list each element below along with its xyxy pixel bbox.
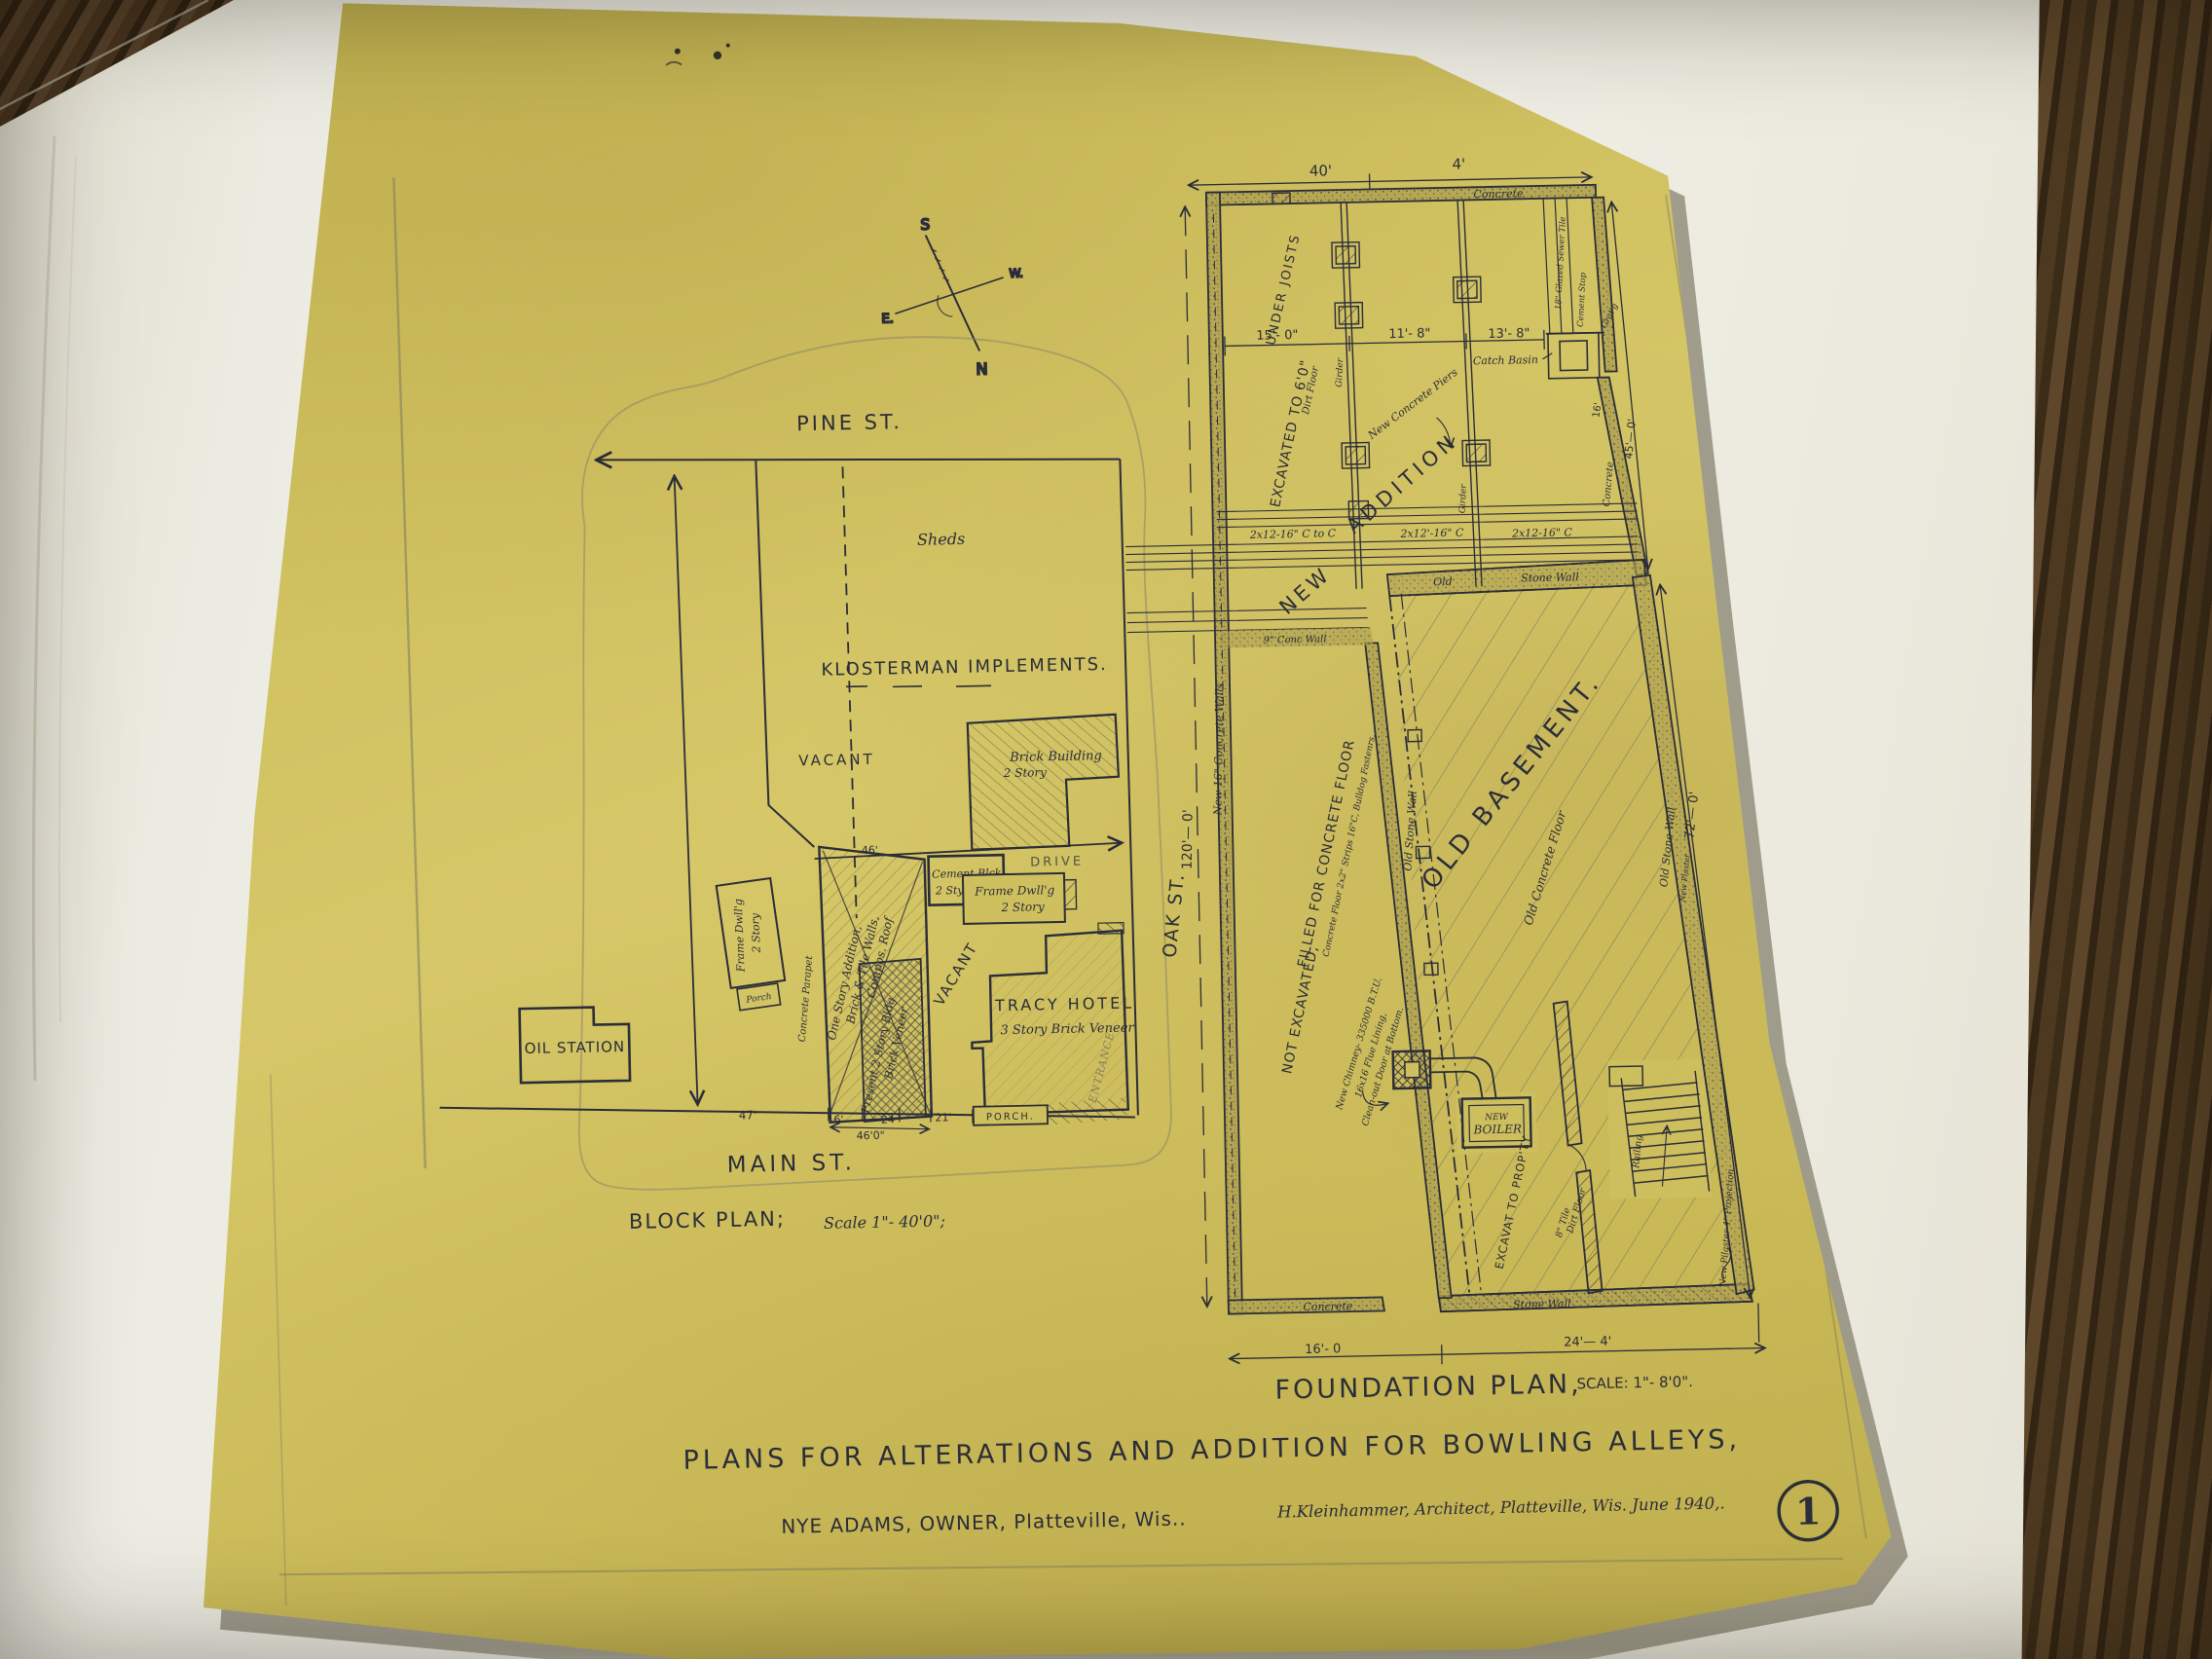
main-st-label: MAIN ST.: [727, 1150, 857, 1178]
compass-e: E.: [881, 312, 894, 326]
compass-s: S: [920, 216, 930, 234]
fp-girder-2: Girder: [1458, 484, 1470, 514]
tracy-hotel-steps: [1098, 923, 1124, 935]
fp-addition: ADDITION: [1342, 428, 1462, 538]
brick-building-label: Brick Building: [1009, 749, 1102, 765]
oil-station-label: OIL STATION: [524, 1038, 625, 1057]
compass-rose: S N W. E.: [879, 214, 1025, 381]
foundation-plan-caption: FOUNDATION PLAN,: [1274, 1369, 1582, 1405]
dim-46-top: 46': [862, 844, 878, 857]
frame-dwelling-west-label: Frame Dwll'g: [732, 899, 748, 974]
fp-joists-3: 2x12-16" C: [1511, 526, 1573, 539]
frame-dwelling-east-label: Frame Dwll'g: [974, 883, 1055, 899]
block-plan-caption: BLOCK PLAN;: [629, 1207, 786, 1234]
ink-specks: [666, 44, 730, 65]
fp-dim-13: 13'- 8": [1488, 326, 1530, 342]
fp-new16: New 16" Concrete Walls: [1211, 682, 1226, 816]
porch-south-label: PORCH.: [986, 1112, 1035, 1124]
compass-w: W.: [1009, 267, 1023, 280]
sheds-label: Sheds: [917, 530, 966, 549]
oak-st-label: OAK ST.: [1159, 871, 1189, 958]
compass-n: N: [976, 359, 987, 378]
porch-west-label: Porch: [745, 992, 772, 1006]
vacant-parcel-label: VACANT: [798, 751, 875, 770]
dim-24: 24: [881, 1113, 895, 1125]
cement-block-story: 2 Sty: [935, 884, 965, 898]
block-plan-scale: Scale 1"- 40'0";: [824, 1211, 945, 1233]
title-block: PLANS FOR ALTERATIONS AND ADDITION FOR B…: [682, 1422, 1838, 1563]
fp-old: Old: [1433, 575, 1453, 588]
fp-concrete-right: Concrete: [1602, 461, 1616, 507]
pine-st-label: PINE ST.: [796, 410, 903, 435]
fp-catch-basin: Catch Basin: [1473, 353, 1538, 367]
fp-joists-1: 2x12-16" C to C: [1249, 527, 1337, 541]
foundation-plan: 40' 4' Concrete UNDER JOISTS 15'- 0" 11'…: [1118, 150, 1766, 1409]
architect-line: H.Kleinhammer, Architect, Platteville, W…: [1276, 1493, 1725, 1521]
frame-dwelling-east-wing: [1064, 880, 1077, 909]
fp-dim-72: 72'— 0': [1682, 791, 1702, 839]
dim-46-0: 46'0": [857, 1129, 885, 1143]
fp-new: NEW: [1274, 562, 1335, 619]
foundation-plan-scale: SCALE: 1"- 8'0".: [1576, 1373, 1693, 1392]
sheet-number: 1: [1795, 1489, 1822, 1533]
fp-concrete-top: Concrete: [1473, 187, 1524, 201]
fp-boiler: BOILER: [1472, 1122, 1522, 1136]
fp-boiler-new: NEW: [1484, 1113, 1509, 1124]
concrete-parapet-label: Concrete Parapet: [797, 954, 816, 1042]
fp-dim-b16: 16'- 0: [1305, 1342, 1342, 1357]
fp-dim-r16: 16': [1591, 402, 1604, 419]
fp-dim-120: 120'— 0': [1180, 809, 1197, 869]
frame-dwelling-west-story: 2 Story: [749, 912, 763, 954]
dim-16: 16': [827, 1113, 843, 1125]
brick-building-outline: [968, 715, 1121, 850]
fp-dim-15: 15'- 0": [1256, 328, 1298, 344]
fp-dim-40: 40': [1309, 162, 1333, 179]
photo-of-architectural-drawing: S N W. E. PINE ST. OAK ST. MAIN ST.: [0, 0, 2212, 1659]
klosterman-label: KLOSTERMAN IMPLEMENTS.: [821, 654, 1108, 681]
fp-dim-4: 4': [1452, 155, 1465, 172]
frame-dwelling-east: [963, 873, 1065, 924]
fp-stone-wall: Stone Wall: [1521, 571, 1579, 584]
fp-conc9: 9" Conc Wall: [1264, 634, 1327, 645]
brick-building-story: 2 Story: [1003, 765, 1048, 780]
fp-joists-2: 2x12'-16" C: [1399, 527, 1464, 540]
catch-basin: [1542, 333, 1600, 379]
block-plan: PINE ST. OAK ST. MAIN ST. Sheds KLOSTERM…: [424, 332, 1197, 1240]
tracy-hotel-label: TRACY HOTEL: [994, 993, 1134, 1014]
sheet-title: PLANS FOR ALTERATIONS AND ADDITION FOR B…: [682, 1424, 1741, 1476]
fp-concrete-bottom: Concrete: [1303, 1300, 1353, 1313]
fp-dim-11: 11'- 8": [1388, 326, 1430, 342]
dim-21: 21': [935, 1111, 951, 1124]
fp-girder-1: Girder: [1335, 357, 1346, 387]
frame-dwelling-east-story: 2 Story: [1000, 900, 1045, 914]
fp-dim-b24: 24'— 4': [1564, 1335, 1611, 1350]
owner-line: NYE ADAMS, OWNER, Platteville, Wis..: [781, 1506, 1187, 1537]
fp-cement-stop: Cement Stop: [1576, 272, 1589, 327]
vacant-lot-label: VACANT: [930, 940, 981, 1009]
drive-label: DRIVE: [1030, 854, 1084, 869]
dim-47: 47': [739, 1108, 757, 1122]
fp-stone-wall-bottom: Stone Wall: [1513, 1298, 1571, 1311]
